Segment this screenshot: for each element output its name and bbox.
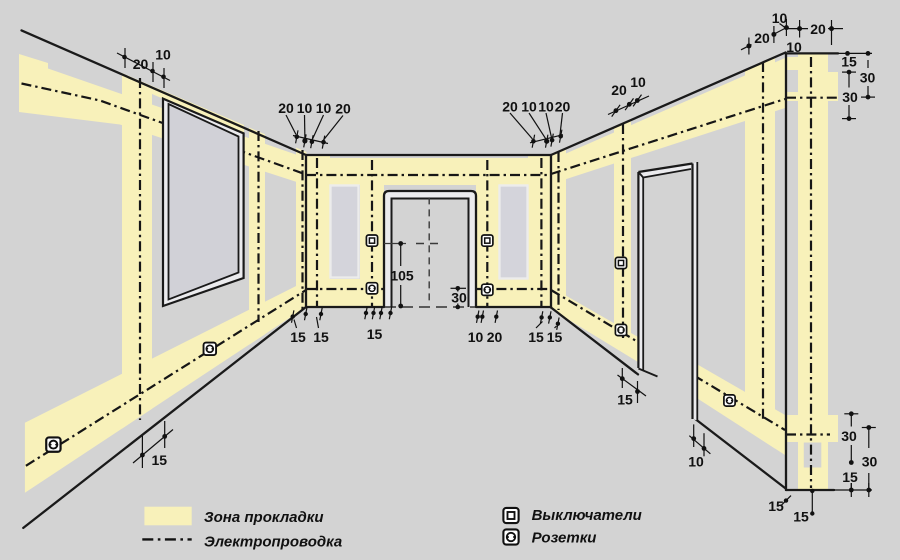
svg-text:10: 10 bbox=[155, 47, 171, 63]
svg-text:20: 20 bbox=[502, 99, 518, 115]
svg-text:15: 15 bbox=[152, 452, 168, 468]
svg-text:10: 10 bbox=[688, 454, 704, 470]
svg-text:20: 20 bbox=[335, 101, 351, 117]
svg-text:15: 15 bbox=[841, 54, 857, 70]
svg-text:20: 20 bbox=[278, 100, 294, 116]
svg-text:Электропроводка: Электропроводка bbox=[204, 534, 342, 551]
svg-text:15: 15 bbox=[768, 498, 784, 514]
svg-text:20: 20 bbox=[611, 82, 627, 98]
svg-text:15: 15 bbox=[617, 392, 633, 408]
svg-text:20: 20 bbox=[133, 56, 149, 72]
svg-text:10: 10 bbox=[316, 100, 332, 116]
svg-text:Розетки: Розетки bbox=[532, 530, 597, 547]
svg-text:Зона прокладки: Зона прокладки bbox=[204, 509, 324, 526]
svg-text:15: 15 bbox=[842, 469, 858, 485]
svg-text:15: 15 bbox=[313, 329, 329, 345]
svg-text:10: 10 bbox=[772, 10, 788, 26]
svg-text:15: 15 bbox=[547, 329, 563, 345]
svg-text:10: 10 bbox=[538, 99, 554, 115]
svg-text:15: 15 bbox=[793, 509, 809, 525]
svg-text:20: 20 bbox=[555, 99, 571, 115]
svg-text:15: 15 bbox=[367, 326, 383, 342]
svg-text:30: 30 bbox=[860, 70, 876, 86]
svg-text:15: 15 bbox=[290, 329, 306, 345]
svg-text:10: 10 bbox=[630, 74, 646, 90]
svg-text:30: 30 bbox=[841, 428, 857, 444]
svg-text:Выключатели: Выключатели bbox=[532, 507, 642, 524]
svg-text:10: 10 bbox=[786, 39, 802, 55]
svg-text:10: 10 bbox=[521, 99, 537, 115]
svg-text:15: 15 bbox=[528, 329, 544, 345]
svg-text:20: 20 bbox=[754, 30, 770, 46]
svg-text:30: 30 bbox=[451, 290, 467, 306]
svg-text:10: 10 bbox=[297, 100, 313, 116]
svg-text:20: 20 bbox=[487, 329, 503, 345]
svg-text:20: 20 bbox=[810, 21, 826, 37]
svg-text:30: 30 bbox=[862, 454, 878, 470]
svg-text:30: 30 bbox=[842, 89, 858, 105]
svg-text:105: 105 bbox=[390, 268, 414, 284]
svg-text:10: 10 bbox=[468, 329, 484, 345]
